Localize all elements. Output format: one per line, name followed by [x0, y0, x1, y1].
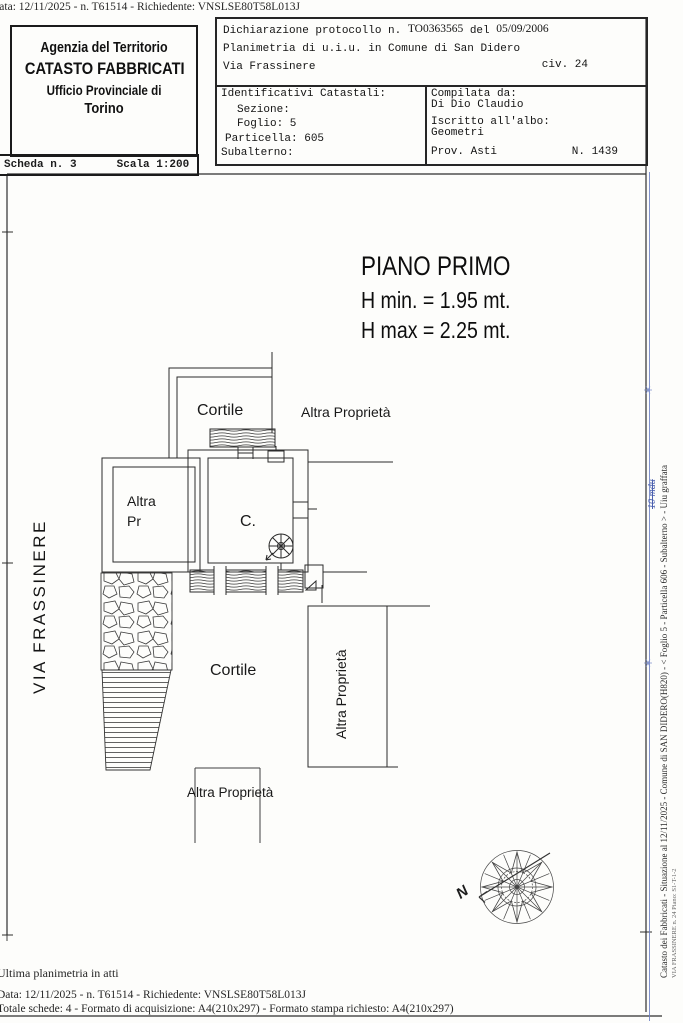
margin-blue-annotation: 10 mdu — [647, 479, 658, 509]
planimetria-line: Planimetria di u.i.u. in Comune di San D… — [223, 43, 520, 55]
agency-city: Torino — [25, 100, 183, 117]
floor-title: PIANO PRIMO — [361, 251, 510, 282]
civic-number: civ. 24 — [542, 59, 588, 71]
agency-register: CATASTO FABBRICATI — [25, 59, 183, 79]
spiral-stair-icon — [266, 534, 293, 570]
province: Prov. Asti — [431, 146, 497, 158]
protocol-number: TO0363565 — [408, 23, 463, 35]
agency-box: Agenzia del Territorio CATASTO FABBRICAT… — [10, 25, 198, 157]
label-other-property-right: Altra Proprietà — [333, 650, 349, 739]
height-max: H max = 2.25 mt. — [361, 317, 510, 344]
identifiers-title: Identificativi Catastali: — [221, 88, 386, 100]
sheet-number-box: Scheda n. 3 Scala 1:200 — [0, 154, 199, 176]
margin-cadastral-caption: Catasto dei Fabbricati - Situazione al 1… — [659, 465, 669, 978]
footer-format-line: Totale schede: 4 - Formato di acquisizio… — [0, 1003, 454, 1015]
road-hatching — [101, 573, 172, 770]
protocol-date: 05/09/2006 — [496, 23, 548, 35]
label-other-property-room-1: Altra — [127, 493, 156, 509]
protocol-line: Dichiarazione protocollo n. TO0363565 de… — [223, 24, 549, 37]
footer-date-line: Data: 12/11/2025 - n. T61514 - Richieden… — [0, 989, 306, 1001]
foglio-field: Foglio: 5 — [237, 118, 296, 130]
drawing-scale: Scala 1:200 — [117, 159, 190, 171]
sheet-number: Scheda n. 3 — [4, 159, 77, 171]
height-min: H min. = 1.95 mt. — [361, 287, 510, 314]
cadastral-floor-plan-document: Data: 12/11/2025 - n. T61514 - Richieden… — [0, 0, 683, 1023]
albo-value: Geometri — [431, 127, 484, 139]
blue-scan-line — [644, 172, 652, 1021]
label-street-name: VIA FRASSINERE — [30, 519, 50, 694]
declaration-box: Dichiarazione protocollo n. TO0363565 de… — [215, 17, 648, 166]
label-other-property-top: Altra Proprietà — [301, 404, 390, 420]
surveyor-name: Di Dio Claudio — [431, 99, 523, 111]
label-other-property-room-2: Pr — [127, 513, 141, 529]
scan-header-line: Data: 12/11/2025 - n. T61514 - Richieden… — [0, 1, 300, 13]
subalterno-field: Subalterno: — [221, 147, 294, 159]
particella-field: Particella: 605 — [225, 133, 324, 145]
compass-rose-icon — [479, 851, 554, 924]
agency-office: Ufficio Provinciale di — [25, 83, 183, 98]
sezione-field: Sezione: — [237, 104, 290, 116]
street-line: Via Frassinere — [223, 61, 315, 73]
cadastral-identifiers: Identificativi Catastali: Sezione: Fogli… — [217, 85, 427, 164]
compiled-by: Compilata da: Di Dio Claudio Iscritto al… — [425, 85, 646, 164]
agency-name: Agenzia del Territorio — [25, 40, 183, 56]
label-room-c: C. — [240, 513, 256, 531]
margin-address-caption: VIA FRASSINERE n. 24 Piano: S1-T-1-2 — [671, 868, 678, 978]
label-courtyard-top: Cortile — [197, 402, 243, 420]
label-other-property-bottom: Altra Proprietà — [187, 785, 273, 800]
del-label: del — [470, 25, 490, 37]
footer-status-line: Ultima planimetria in atti — [0, 966, 119, 981]
declaration-header: Dichiarazione protocollo n. TO0363565 de… — [217, 19, 646, 87]
label-courtyard-bottom: Cortile — [210, 662, 256, 680]
protocol-label: Dichiarazione protocollo n. — [223, 25, 401, 37]
registration-number: N. 1439 — [572, 146, 618, 158]
